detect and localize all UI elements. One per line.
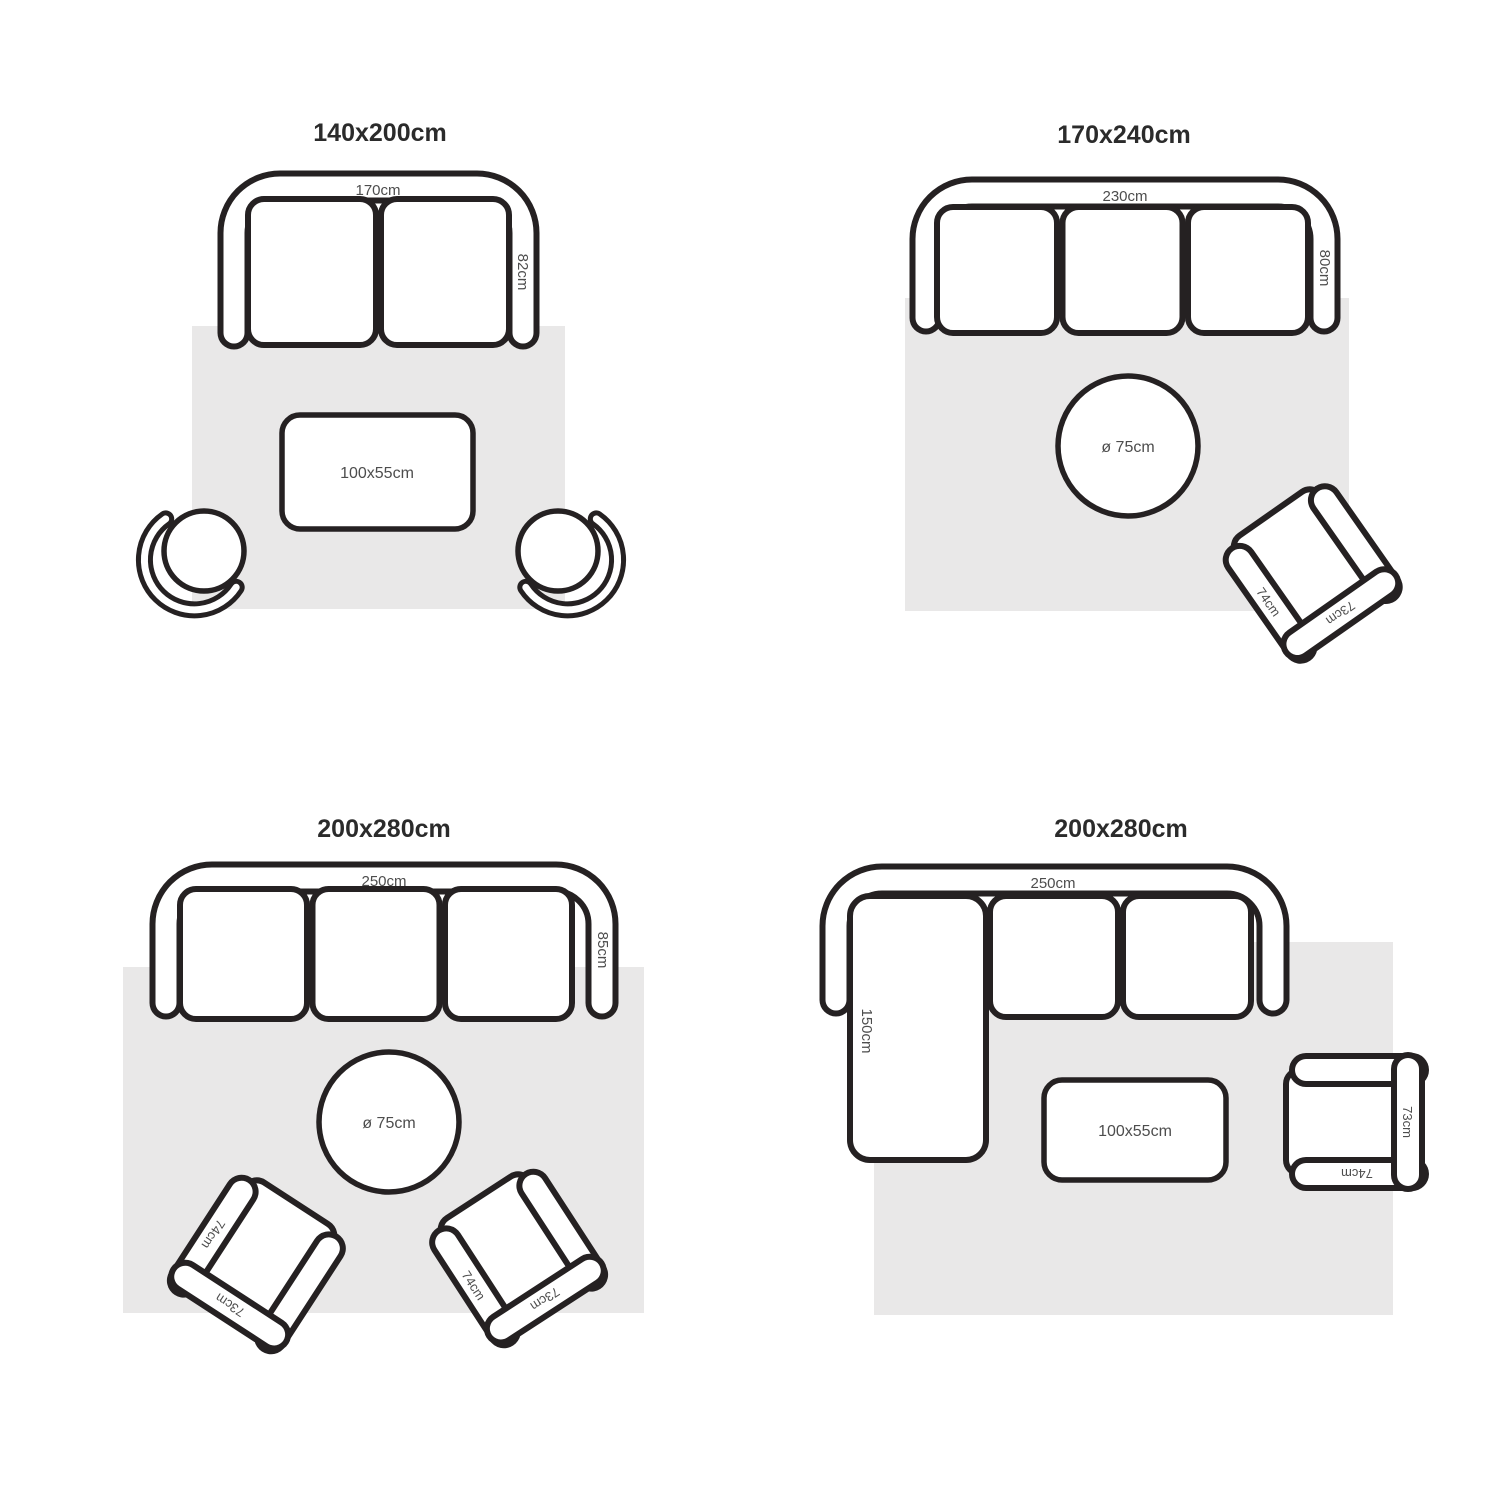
round-table: ø 75cm xyxy=(1058,376,1198,516)
sofa-cushion xyxy=(248,199,376,345)
coffee-table: 100x55cm xyxy=(1044,1080,1226,1180)
sofa-cushion xyxy=(1188,207,1308,333)
sofa-cushion xyxy=(180,889,307,1019)
sofa-2-seat: 170cm 82cm xyxy=(234,182,531,345)
sofa-cushion xyxy=(990,896,1118,1017)
panel-200x280-a: 200x280cm 250cm 85cm ø 75cm 74cm 73cm 74… xyxy=(123,815,644,1340)
sofa-cushion xyxy=(381,199,509,345)
panel-170x240: 170x240cm 230cm 80cm ø 75cm 74cm 73cm xyxy=(905,121,1388,654)
sofa-cushion xyxy=(313,889,440,1019)
armchair-back-label: 73cm xyxy=(1400,1106,1415,1138)
sofa-cushion xyxy=(1123,896,1251,1017)
tub-chair-right xyxy=(518,511,618,610)
rug-size-guide: 140x200cm 170cm 82cm 100x55cm 170x240cm … xyxy=(0,0,1500,1500)
panel-title: 200x280cm xyxy=(1054,815,1187,843)
panel-title: 200x280cm xyxy=(317,815,450,843)
armchair-arm-label: 74cm xyxy=(1341,1166,1373,1181)
coffee-table-label: 100x55cm xyxy=(1098,1123,1172,1140)
coffee-table-label: 100x55cm xyxy=(340,465,414,482)
sofa-3-seat: 250cm 85cm xyxy=(166,873,611,1019)
panel-140x200: 140x200cm 170cm 82cm 100x55cm xyxy=(144,119,617,610)
panel-title: 170x240cm xyxy=(1057,121,1190,149)
sofa-3-seat: 230cm 80cm xyxy=(926,188,1333,333)
armchair: 74cm 73cm xyxy=(1286,1069,1415,1181)
sofa-width-label: 250cm xyxy=(1030,875,1075,892)
sofa-width-label: 170cm xyxy=(355,182,400,199)
sofa-cushion xyxy=(937,207,1057,333)
sofa-chaise-label: 150cm xyxy=(858,1008,875,1053)
sofa-cushion xyxy=(445,889,572,1019)
sofa-width-label: 250cm xyxy=(361,873,406,890)
round-table-label: ø 75cm xyxy=(362,1115,415,1132)
sofa-depth-label: 80cm xyxy=(1316,250,1333,287)
sofa-cushion xyxy=(1063,207,1183,333)
round-table: ø 75cm xyxy=(319,1052,459,1192)
rug-layout-diagram: 140x200cm 170cm 82cm 100x55cm 170x240cm … xyxy=(0,0,1500,1500)
coffee-table: 100x55cm xyxy=(282,415,473,529)
sofa-depth-label: 85cm xyxy=(594,932,611,969)
sofa-width-label: 230cm xyxy=(1102,188,1147,205)
sofa-depth-label: 82cm xyxy=(514,254,531,291)
panel-200x280-b: 200x280cm 250cm 150cm 100x55cm 74cm 73cm xyxy=(836,815,1415,1315)
round-table-label: ø 75cm xyxy=(1101,439,1154,456)
panel-title: 140x200cm xyxy=(313,119,446,147)
